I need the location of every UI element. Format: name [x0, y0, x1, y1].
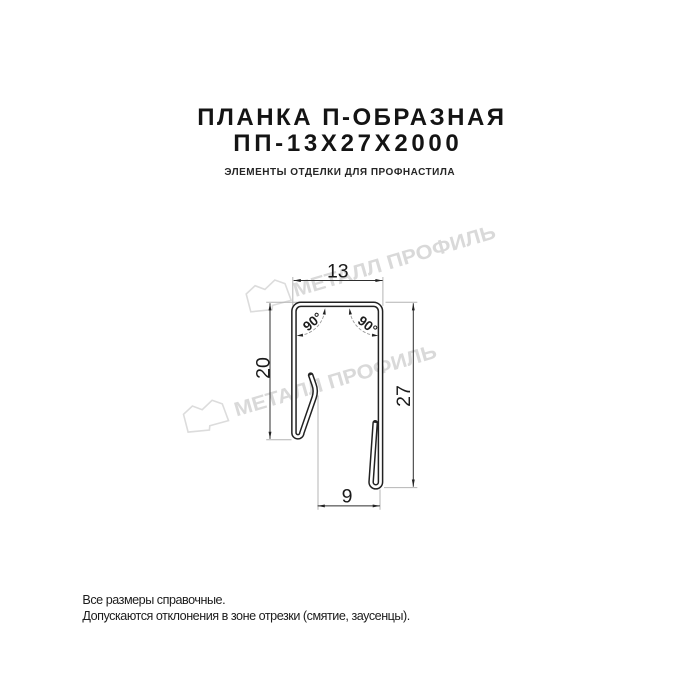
svg-text:90°: 90° — [355, 313, 380, 337]
svg-text:МЕТАЛЛ ПРОФИЛЬ: МЕТАЛЛ ПРОФИЛЬ — [232, 341, 440, 421]
svg-text:27: 27 — [393, 385, 415, 407]
svg-text:20: 20 — [253, 357, 275, 379]
svg-text:13: 13 — [327, 260, 349, 282]
svg-text:МЕТАЛЛ ПРОФИЛЬ: МЕТАЛЛ ПРОФИЛЬ — [291, 221, 499, 301]
svg-text:90°: 90° — [300, 309, 325, 334]
svg-text:9: 9 — [342, 486, 353, 508]
